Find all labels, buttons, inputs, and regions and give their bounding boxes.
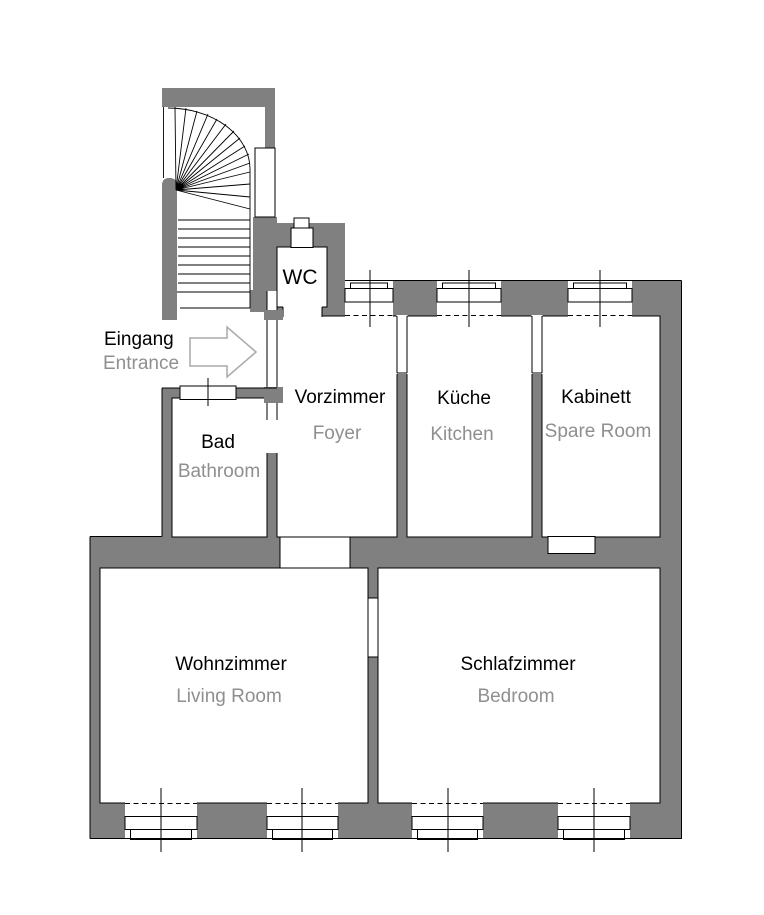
foyer-bath-wall — [267, 453, 277, 537]
label-living-room-de: Wohnzimmer — [175, 654, 287, 675]
wc-cistern — [291, 228, 313, 248]
doors — [264, 291, 595, 658]
living-bed-wall-top — [368, 568, 378, 598]
wc-cistern-top — [294, 218, 309, 229]
entrance-block — [264, 387, 283, 403]
label-bathroom-en: Bathroom — [178, 461, 260, 482]
window-bathroom — [180, 378, 236, 406]
stair-top-wall — [162, 88, 275, 107]
label-spare-room-de: Kabinett — [561, 387, 631, 408]
kitchen-door — [397, 315, 408, 374]
label-entrance-en: Entrance — [103, 353, 179, 374]
entrance-arrow-icon — [190, 327, 256, 377]
label-entrance-de: Eingang — [104, 329, 174, 350]
top-wall-pier-2 — [501, 281, 568, 316]
right-outer-wall — [660, 281, 682, 839]
room-outlines — [100, 247, 660, 803]
kitchen-spare-wall — [532, 373, 542, 537]
label-kitchen-en: Kitchen — [430, 424, 493, 445]
spare-room-door — [532, 315, 543, 374]
entrance-lintel — [264, 310, 283, 320]
living-bed-wall-bottom — [368, 657, 378, 803]
stair-left-wall — [162, 178, 177, 320]
stair-winders — [175, 107, 250, 209]
window-spare-room — [568, 270, 632, 327]
floorplan-page: WC Eingang Entrance Bad Bathroom Vorzimm… — [0, 0, 764, 915]
stair-treads — [177, 220, 250, 308]
window-bedroom-1 — [412, 788, 483, 852]
window-kitchen — [437, 270, 501, 327]
bedroom-door — [368, 598, 379, 658]
wc-door — [283, 306, 322, 317]
wc-right-wall — [327, 223, 345, 316]
entrance-door — [266, 320, 278, 387]
living-room-opening — [280, 536, 351, 569]
bathroom-door — [266, 420, 279, 453]
floorplan-drawing: WC Eingang Entrance Bad Bathroom Vorzimm… — [0, 0, 764, 915]
wc-left-wall-lower — [253, 291, 267, 311]
label-foyer-de: Vorzimmer — [295, 387, 386, 408]
bath-left-wall — [162, 388, 172, 537]
stairwell-window — [255, 148, 275, 217]
label-living-room-en: Living Room — [176, 686, 282, 707]
label-wc: WC — [283, 266, 318, 289]
foyer-bath-wall-thin — [266, 403, 278, 420]
window-foyer — [345, 270, 393, 327]
label-spare-room-en: Spare Room — [545, 421, 652, 442]
label-kitchen-de: Küche — [437, 388, 491, 409]
wc-bottom-right-wall — [322, 307, 345, 316]
stair-right-wall — [265, 88, 275, 150]
foyer-kitchen-wall — [397, 373, 407, 537]
label-bedroom-en: Bedroom — [477, 686, 554, 707]
mid-wall-right — [350, 537, 662, 568]
label-bedroom-de: Schlafzimmer — [460, 654, 576, 675]
window-living-1 — [125, 788, 197, 852]
window-living-2 — [267, 788, 338, 852]
label-bathroom-de: Bad — [201, 432, 235, 453]
left-outer-wall — [90, 537, 100, 839]
wc-fixture — [291, 218, 313, 248]
window-bedroom-2 — [558, 788, 630, 852]
mid-wall-left — [90, 537, 280, 568]
label-foyer-en: Foyer — [313, 423, 362, 444]
wc-shaft — [267, 291, 277, 310]
top-wall-pier-1 — [393, 281, 437, 316]
spare-room-niche — [548, 537, 595, 554]
